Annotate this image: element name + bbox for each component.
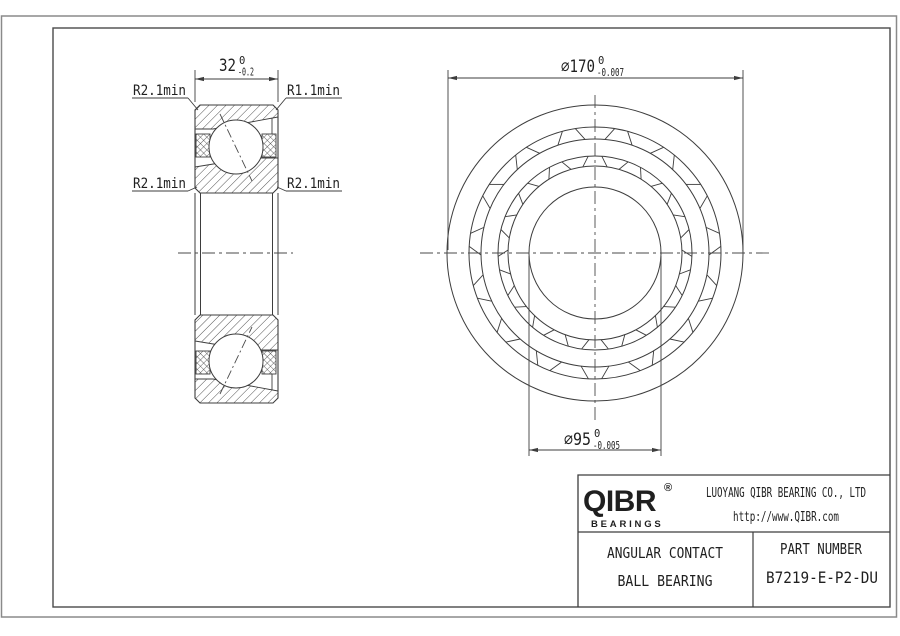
section-top-internals <box>195 105 278 193</box>
arrowhead-left <box>195 77 204 81</box>
section-bottom-internals <box>195 315 278 403</box>
bearing-drawing: 32 0 -0.2 R2.1min R1.1min R2.1min R2.1mi… <box>0 0 900 636</box>
arrowhead-right <box>734 76 743 80</box>
product-name-line2: BALL BEARING <box>618 572 713 590</box>
front-view <box>420 95 772 420</box>
part-number-label: PART NUMBER <box>780 540 863 558</box>
radius-label-top-right: R1.1min <box>287 83 340 99</box>
section-view <box>178 105 293 403</box>
dimension-bore-diameter: ∅95 0 -0.005 <box>529 256 661 456</box>
engineering-drawing-sheet: 32 0 -0.2 R2.1min R1.1min R2.1min R2.1mi… <box>0 0 900 636</box>
cage-section-left <box>196 351 210 374</box>
website-url: http://www.QIBR.com <box>733 510 839 525</box>
arrowhead-right <box>652 448 661 452</box>
dim-width-tol-bottom: -0.2 <box>238 67 254 79</box>
logo-subtext: BEARINGS <box>591 519 664 530</box>
radius-label-top-left: R2.1min <box>133 83 186 99</box>
part-number-value: B7219-E-P2-DU <box>766 568 878 587</box>
dim-bore-tol-top: 0 <box>594 428 600 440</box>
cage-section-right <box>262 134 276 157</box>
radius-label-mid-right: R2.1min <box>287 176 340 192</box>
dim-width-tol-top: 0 <box>239 55 245 67</box>
dim-bore-tol-bottom: -0.005 <box>593 440 620 452</box>
brand-logo: QIBR ® BEARINGS <box>583 482 672 530</box>
arrowhead-left <box>448 76 457 80</box>
cage-section-left <box>196 134 210 157</box>
company-name: LUOYANG QIBR BEARING CO., LTD <box>706 486 866 501</box>
registered-mark-icon: ® <box>664 482 672 494</box>
dimension-width-32: 32 0 -0.2 <box>195 55 278 102</box>
dim-od-value: ∅170 <box>561 57 595 77</box>
bore-lines <box>195 193 278 315</box>
dimension-outer-diameter: ∅170 0 -0.007 <box>448 55 743 250</box>
dim-od-tol-bottom: -0.007 <box>597 67 624 79</box>
outer-sheet-border <box>2 16 897 617</box>
arrowhead-left <box>529 448 538 452</box>
cage-section-right <box>262 351 276 374</box>
dim-od-tol-top: 0 <box>598 55 604 67</box>
title-block: QIBR ® BEARINGS LUOYANG QIBR BEARING CO.… <box>578 475 890 607</box>
arrowhead-right <box>269 77 278 81</box>
product-name-line1: ANGULAR CONTACT <box>607 544 723 562</box>
dim-bore-value: ∅95 <box>564 430 591 450</box>
logo-text: QIBR <box>583 485 657 518</box>
dim-width-value: 32 <box>219 56 236 76</box>
radius-label-mid-left: R2.1min <box>133 176 186 192</box>
